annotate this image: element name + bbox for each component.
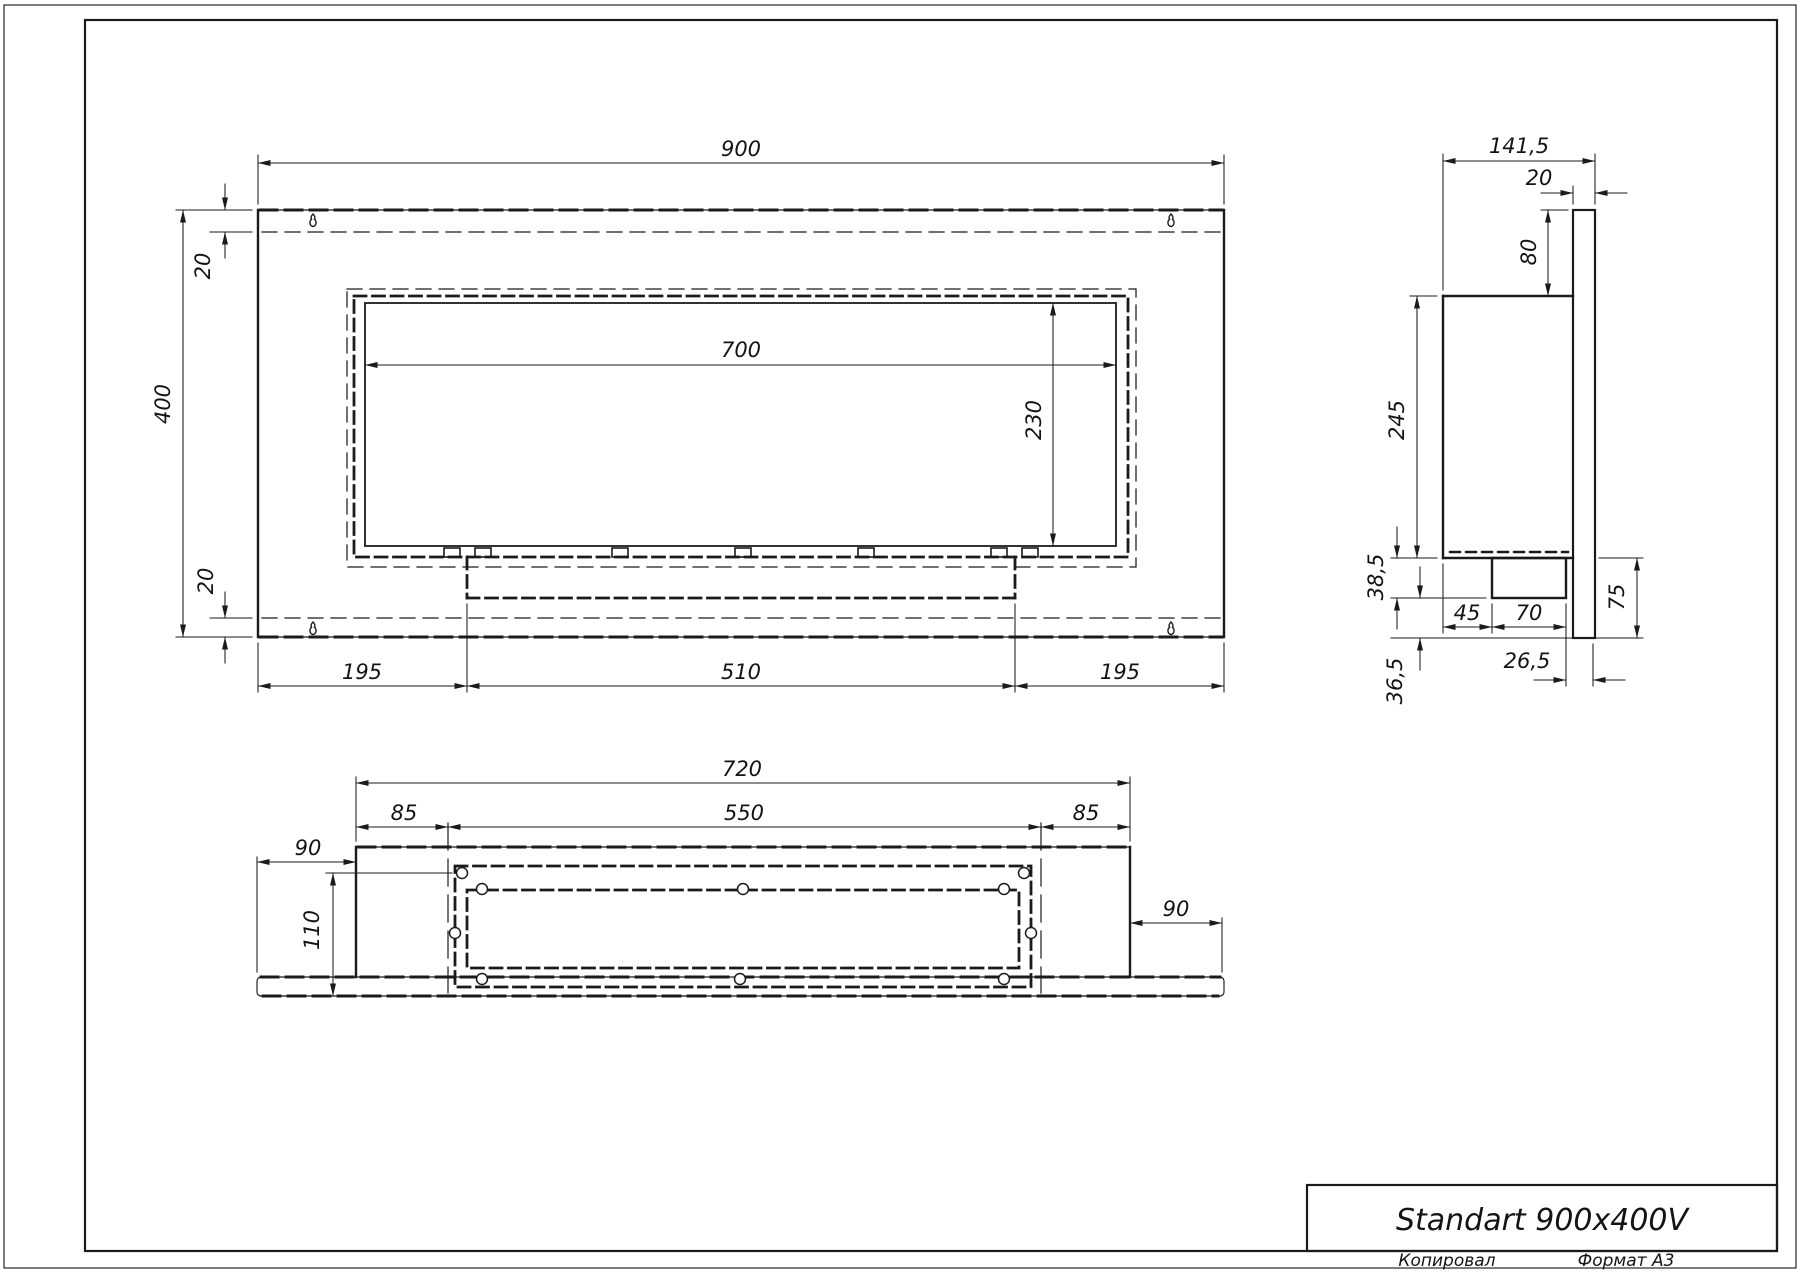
- keyhole-icon: [1168, 214, 1174, 226]
- dim-front-flange-bottom: 20: [194, 568, 218, 595]
- burner-tray-hidden: [467, 557, 1015, 598]
- dim-opening-width: 700: [721, 338, 761, 362]
- bottom-view: 720 85 550 85 90 110 90: [257, 757, 1224, 996]
- dim-tray-span: 510: [721, 660, 761, 684]
- dim-depth: 141,5: [1489, 134, 1549, 158]
- hole: [477, 974, 488, 985]
- dim-opening-width-bottom: 550: [724, 801, 764, 825]
- dim-front-flange-top: 20: [191, 253, 215, 280]
- drawing-title: Standart 900x400V: [1396, 1203, 1691, 1238]
- front-view: 900 400 20 20 700 230 195: [151, 137, 1224, 692]
- dim-plate-thickness: 20: [1526, 166, 1553, 190]
- side-view: 141,5 20 80 245 38,5 36,5: [1364, 134, 1643, 704]
- front-dimensions: 900 400 20 20 700 230 195: [151, 137, 1224, 692]
- dim-top-drop: 80: [1517, 239, 1541, 266]
- side-dimensions: 141,5 20 80 245 38,5 36,5: [1364, 134, 1643, 704]
- dim-front-height: 400: [151, 384, 175, 424]
- hole: [457, 868, 468, 879]
- hole: [999, 884, 1010, 895]
- keyhole-icon: [310, 214, 316, 226]
- dim-body-height: 245: [1385, 400, 1409, 440]
- dim-body-width: 720: [722, 757, 762, 781]
- hole: [450, 928, 461, 939]
- dim-below-tray: 36,5: [1383, 658, 1407, 705]
- side-front-plate: [1573, 210, 1595, 638]
- dim-tray-to-plate: 26,5: [1504, 649, 1551, 673]
- title-block: Standart 900x400V Копировал Формат A3: [1307, 1185, 1777, 1271]
- keyhole-icon: [1168, 622, 1174, 634]
- dim-opening-height: 230: [1022, 400, 1046, 440]
- dim-tray-drop: 38,5: [1364, 554, 1388, 601]
- dim-plate-overhang-right: 90: [1163, 897, 1190, 921]
- dim-tray-depth: 70: [1516, 601, 1543, 625]
- dim-margin-left: 85: [391, 801, 418, 825]
- dim-front-width: 900: [721, 137, 761, 161]
- dim-bottom-right-offset: 195: [1100, 660, 1140, 684]
- hole: [999, 974, 1010, 985]
- hole: [735, 974, 746, 985]
- dim-margin-right: 85: [1073, 801, 1100, 825]
- bottom-dimensions: 720 85 550 85 90 110 90: [257, 757, 1222, 996]
- keyhole-icon: [310, 622, 316, 634]
- copied-label: Копировал: [1398, 1251, 1495, 1271]
- opening-outer-hidden-rect: [347, 289, 1136, 567]
- hole: [738, 884, 749, 895]
- dim-bottom-left-offset: 195: [342, 660, 382, 684]
- drawing-frame: [85, 20, 1777, 1251]
- opening-mid-hidden-rect: [354, 296, 1128, 557]
- dim-tray-offset: 45: [1454, 601, 1481, 625]
- dim-lower-height: 75: [1605, 584, 1629, 611]
- drawing-canvas: 900 400 20 20 700 230 195: [0, 0, 1800, 1273]
- hole: [477, 884, 488, 895]
- drawing-sheet: 900 400 20 20 700 230 195: [0, 0, 1800, 1273]
- hole: [1019, 868, 1030, 879]
- dim-plate-overhang-left: 90: [295, 836, 322, 860]
- hidden-opening-inner: [467, 890, 1019, 968]
- side-tray: [1492, 558, 1566, 598]
- hole: [1026, 928, 1037, 939]
- dim-depth-bottom: 110: [300, 910, 324, 950]
- format-label: Формат A3: [1578, 1251, 1675, 1271]
